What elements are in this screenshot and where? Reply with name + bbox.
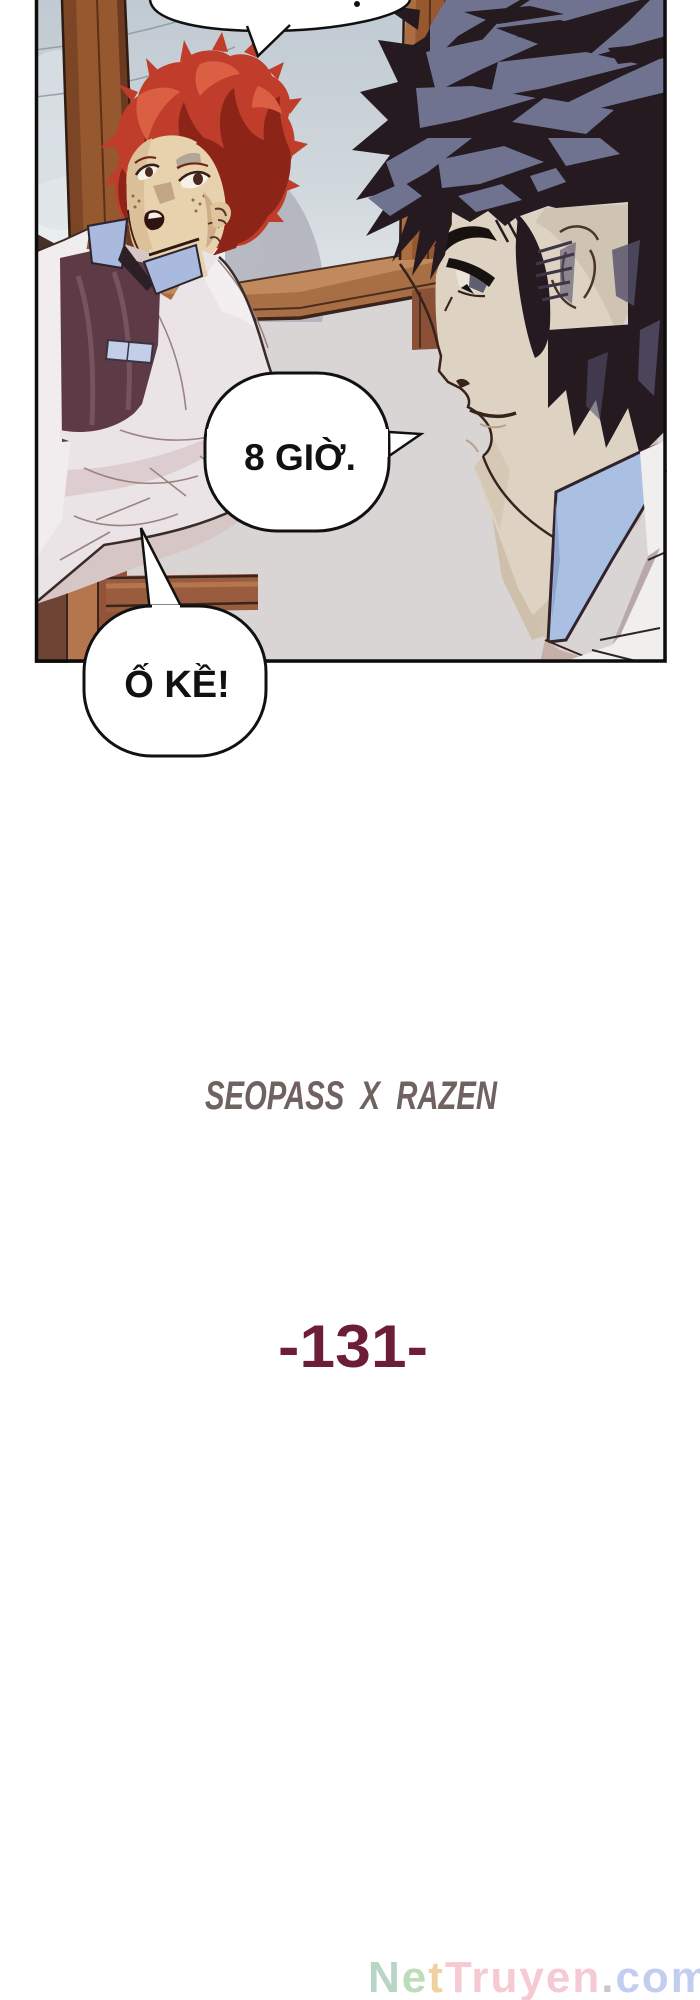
svg-text:-131-: -131- [278, 1313, 428, 1380]
svg-text:Ố KỀ!: Ố KỀ! [124, 661, 230, 706]
svg-text:NetTruyen.com: NetTruyen.com [368, 1953, 700, 2000]
svg-text:8 GIỜ.: 8 GIỜ. [244, 436, 356, 478]
svg-text:SEOPASS X RAZEN: SEOPASS X RAZEN [205, 1074, 498, 1118]
